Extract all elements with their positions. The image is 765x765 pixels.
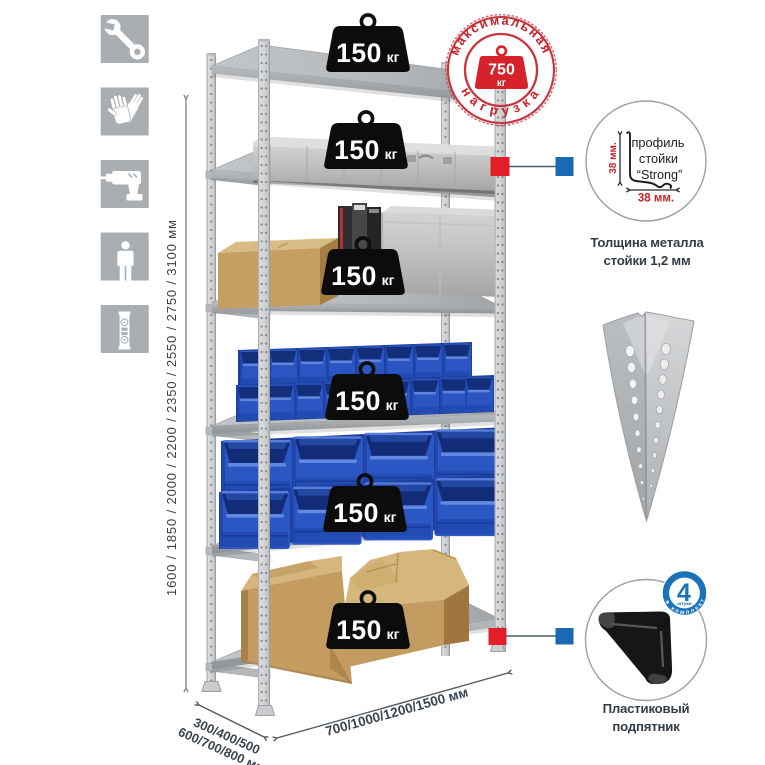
svg-text:38 мм.: 38 мм.: [608, 142, 619, 174]
svg-text:кг: кг: [384, 509, 397, 525]
svg-text:кг: кг: [387, 49, 400, 65]
svg-text:Пластиковый: Пластиковый: [603, 701, 690, 716]
svg-text:150: 150: [334, 135, 380, 165]
svg-text:150: 150: [336, 38, 382, 68]
svg-text:штуки: штуки: [677, 602, 692, 607]
svg-text:кг: кг: [497, 78, 506, 89]
svg-text:1600 / 1850 / 2000 / 2200 / 23: 1600 / 1850 / 2000 / 2200 / 2350 / 2550 …: [164, 220, 179, 596]
svg-text:кг: кг: [386, 397, 399, 413]
svg-text:150: 150: [331, 261, 377, 291]
svg-text:подпятник: подпятник: [612, 719, 680, 734]
svg-text:38 мм.: 38 мм.: [638, 193, 674, 205]
svg-text:кг: кг: [382, 272, 395, 288]
svg-text:стойки 1,2 мм: стойки 1,2 мм: [603, 253, 690, 268]
svg-text:150: 150: [335, 386, 381, 416]
svg-text:150: 150: [336, 615, 382, 645]
svg-text:Толщина металла: Толщина металла: [590, 235, 704, 250]
svg-text:профиль: профиль: [632, 135, 685, 150]
svg-text:кг: кг: [385, 146, 398, 162]
svg-text:150: 150: [333, 498, 379, 528]
svg-text:“Strong”: “Strong”: [637, 168, 683, 182]
svg-text:750: 750: [488, 62, 515, 79]
svg-text:стойки: стойки: [639, 151, 678, 166]
svg-text:кг: кг: [387, 626, 400, 642]
